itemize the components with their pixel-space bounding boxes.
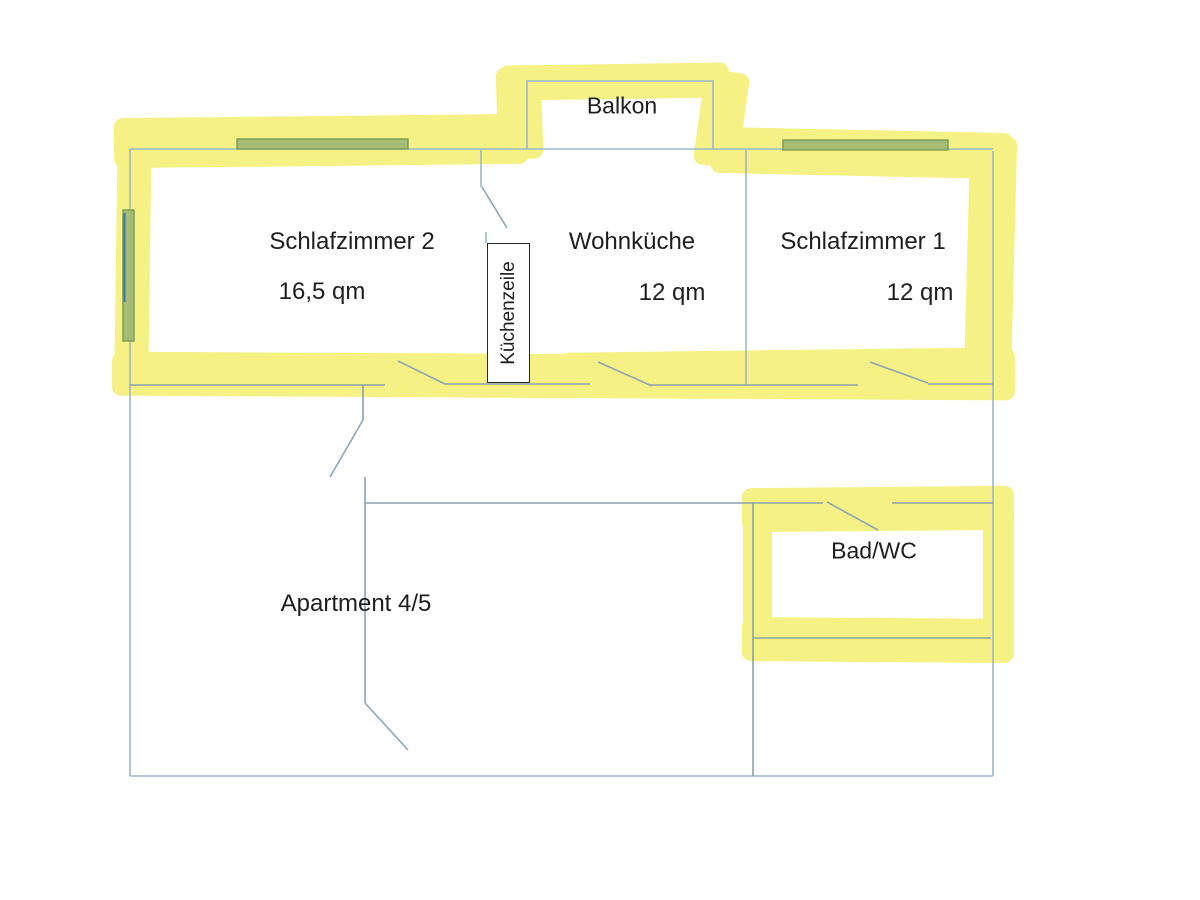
door-corridor-upper — [330, 420, 363, 477]
bedroom1-area: 12 qm — [887, 279, 954, 307]
door-bathroom — [827, 502, 878, 530]
floor-plan-lines — [0, 0, 1200, 900]
door-lines — [330, 187, 928, 750]
interior-walls — [130, 384, 993, 776]
door-living-kitchen — [598, 362, 652, 386]
kuechenzeile-box: Küchenzeile — [487, 243, 530, 383]
living-kitchen-label: Wohnküche — [569, 228, 695, 256]
living-kitchen-area: 12 qm — [639, 279, 706, 307]
door-balcony — [482, 187, 507, 228]
door-corridor-lower — [365, 703, 408, 750]
bedroom2-label: Schlafzimmer 2 — [269, 228, 434, 256]
balcony-label: Balkon — [587, 93, 657, 120]
window-bedroom2-icon — [237, 139, 408, 149]
window-bedroom1-icon — [783, 140, 948, 150]
bedroom2-area: 16,5 qm — [279, 278, 366, 306]
kuechenzeile-label: Küchenzeile — [498, 261, 520, 365]
bathroom-label: Bad/WC — [831, 538, 917, 565]
door-bedroom2 — [398, 361, 445, 384]
bedroom1-label: Schlafzimmer 1 — [780, 228, 945, 256]
outer-walls — [130, 81, 993, 776]
apartment-label: Apartment 4/5 — [281, 590, 432, 618]
floor-plan-canvas: Küchenzeile Balkon Schlafzimmer 2 16,5 q… — [0, 0, 1200, 900]
door-bedroom1 — [870, 362, 928, 383]
